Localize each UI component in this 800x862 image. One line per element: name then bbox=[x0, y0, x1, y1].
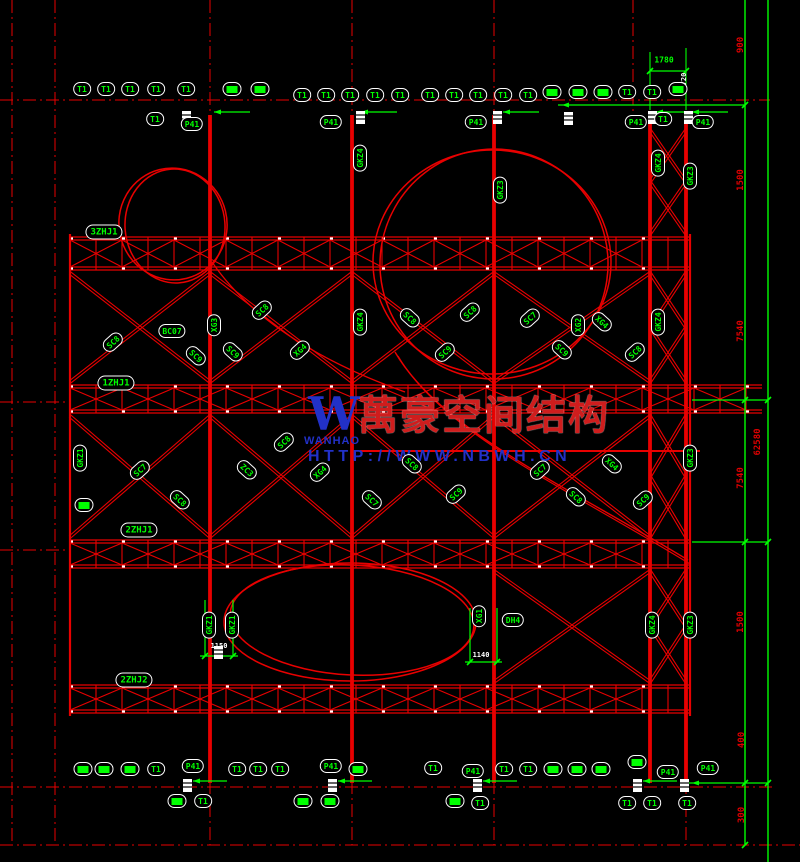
label-capsule-block bbox=[251, 82, 270, 96]
label-capsule: T1 bbox=[494, 88, 512, 102]
label-capsule: P41 bbox=[320, 759, 342, 773]
dimension-text: 62580 bbox=[753, 428, 763, 455]
label-capsule: P41 bbox=[182, 759, 204, 773]
label-capsule: GKZ4 bbox=[651, 308, 665, 335]
label-capsule: T1 bbox=[519, 762, 537, 776]
label-capsule: GKZ4 bbox=[651, 149, 665, 176]
dimension-text: 400 bbox=[737, 732, 747, 748]
label-capsule: T1 bbox=[317, 88, 335, 102]
green-fill-block bbox=[325, 798, 336, 805]
green-fill-block bbox=[572, 766, 583, 773]
label-capsule-block bbox=[544, 762, 563, 776]
label-capsule: P41 bbox=[181, 117, 203, 131]
label-capsule: T1 bbox=[424, 761, 442, 775]
green-fill-block bbox=[353, 766, 364, 773]
label-capsule: BC07 bbox=[158, 324, 185, 338]
label-capsule: T1 bbox=[445, 88, 463, 102]
label-capsule: P41 bbox=[320, 115, 342, 129]
label-capsule: T1 bbox=[147, 762, 165, 776]
label-capsule: T1 bbox=[146, 112, 164, 126]
label-capsule-block bbox=[95, 762, 114, 776]
label-capsule: XG3 bbox=[207, 314, 221, 336]
drawing-linework bbox=[0, 0, 800, 862]
green-fill-block bbox=[78, 766, 89, 773]
label-capsule: T1 bbox=[271, 762, 289, 776]
label-capsule: P41 bbox=[697, 761, 719, 775]
label-capsule: P41 bbox=[657, 765, 679, 779]
label-capsule: GKZ4 bbox=[353, 144, 367, 171]
label-capsule: T1 bbox=[121, 82, 139, 96]
dimension-text: 1500 bbox=[736, 611, 746, 633]
label-capsule-block bbox=[568, 762, 587, 776]
label-capsule: T1 bbox=[643, 85, 661, 99]
green-fill-block bbox=[298, 798, 309, 805]
label-capsule: T1 bbox=[519, 88, 537, 102]
dimension-text: 7540 bbox=[736, 320, 746, 342]
label-capsule-block bbox=[223, 82, 242, 96]
label-capsule: 1ZHJ1 bbox=[97, 376, 134, 391]
label-capsule: 2ZHJ1 bbox=[120, 523, 157, 538]
label-capsule: T1 bbox=[654, 112, 672, 126]
green-fill-block bbox=[548, 766, 559, 773]
cad-canvas: W WANHAO 萬豪空间结构 HTTP://WWW.NBWH.CN 3ZHJ1… bbox=[0, 0, 800, 862]
label-capsule: GKZ1 bbox=[73, 444, 87, 471]
label-capsule-block bbox=[294, 794, 313, 808]
green-fill-block bbox=[598, 89, 609, 96]
label-capsule: T1 bbox=[194, 794, 212, 808]
label-capsule: XG2 bbox=[571, 314, 585, 336]
label-capsule-block bbox=[446, 794, 465, 808]
label-capsule: GKZ4 bbox=[645, 611, 659, 638]
green-fill-block bbox=[227, 86, 238, 93]
label-capsule-block bbox=[75, 498, 94, 512]
label-capsule: P41 bbox=[465, 115, 487, 129]
label-capsule: T1 bbox=[678, 796, 696, 810]
green-fill-block bbox=[596, 766, 607, 773]
label-capsule-block bbox=[569, 85, 588, 99]
dimension-text: 300 bbox=[737, 807, 747, 823]
label-capsule: T1 bbox=[469, 88, 487, 102]
label-capsule-block bbox=[594, 85, 613, 99]
green-fill-block bbox=[450, 798, 461, 805]
green-fill-block bbox=[99, 766, 110, 773]
label-capsule-block bbox=[349, 762, 368, 776]
dimension-text: 1780 bbox=[654, 56, 673, 65]
label-capsule: T1 bbox=[177, 82, 195, 96]
label-capsule: P41 bbox=[692, 115, 714, 129]
label-capsule: T1 bbox=[391, 88, 409, 102]
label-capsule: T1 bbox=[618, 796, 636, 810]
label-capsule: T1 bbox=[471, 796, 489, 810]
label-capsule: T1 bbox=[341, 88, 359, 102]
label-capsule-block bbox=[121, 762, 140, 776]
dimension-text: 7540 bbox=[736, 467, 746, 489]
green-fill-block bbox=[172, 798, 183, 805]
label-capsule: T1 bbox=[147, 82, 165, 96]
green-fill-block bbox=[79, 502, 90, 509]
label-capsule: P41 bbox=[462, 764, 484, 778]
label-capsule: GKZ3 bbox=[683, 162, 697, 189]
label-capsule: P41 bbox=[625, 115, 647, 129]
label-capsule: T1 bbox=[618, 85, 636, 99]
green-fill-block bbox=[125, 766, 136, 773]
green-fill-block bbox=[673, 86, 684, 93]
dimension-text: 900 bbox=[736, 37, 746, 53]
label-capsule: T1 bbox=[293, 88, 311, 102]
green-fill-block bbox=[547, 89, 558, 96]
label-capsule: GKZ1 bbox=[202, 611, 216, 638]
label-capsule: GKZ4 bbox=[353, 308, 367, 335]
label-capsule: 3ZHJ1 bbox=[85, 225, 122, 240]
label-capsule-block bbox=[168, 794, 187, 808]
label-capsule: T1 bbox=[73, 82, 91, 96]
label-capsule: XG1 bbox=[472, 605, 486, 627]
green-fill-block bbox=[255, 86, 266, 93]
label-capsule-block bbox=[74, 762, 93, 776]
label-capsule-block bbox=[592, 762, 611, 776]
label-capsule-block bbox=[321, 794, 340, 808]
green-fill-block bbox=[573, 89, 584, 96]
label-capsule: GKZ3 bbox=[493, 176, 507, 203]
label-capsule: T1 bbox=[228, 762, 246, 776]
label-capsule: T1 bbox=[97, 82, 115, 96]
dimension-text: 1150 bbox=[211, 642, 228, 650]
label-capsule: T1 bbox=[495, 762, 513, 776]
label-capsule: GKZ1 bbox=[225, 611, 239, 638]
label-capsule: DH4 bbox=[502, 613, 524, 627]
label-capsule-block bbox=[543, 85, 562, 99]
label-capsule-block bbox=[628, 755, 647, 769]
label-capsule: T1 bbox=[643, 796, 661, 810]
label-capsule: T1 bbox=[421, 88, 439, 102]
label-capsule: GKZ3 bbox=[683, 611, 697, 638]
label-capsule-block bbox=[669, 82, 688, 96]
label-capsule: T1 bbox=[366, 88, 384, 102]
dimension-text: 1500 bbox=[736, 169, 746, 191]
label-capsule: GKZ3 bbox=[683, 444, 697, 471]
dimension-text: 1140 bbox=[473, 651, 490, 659]
label-capsule: 2ZHJ2 bbox=[115, 673, 152, 688]
label-capsule: T1 bbox=[249, 762, 267, 776]
green-fill-block bbox=[632, 759, 643, 766]
